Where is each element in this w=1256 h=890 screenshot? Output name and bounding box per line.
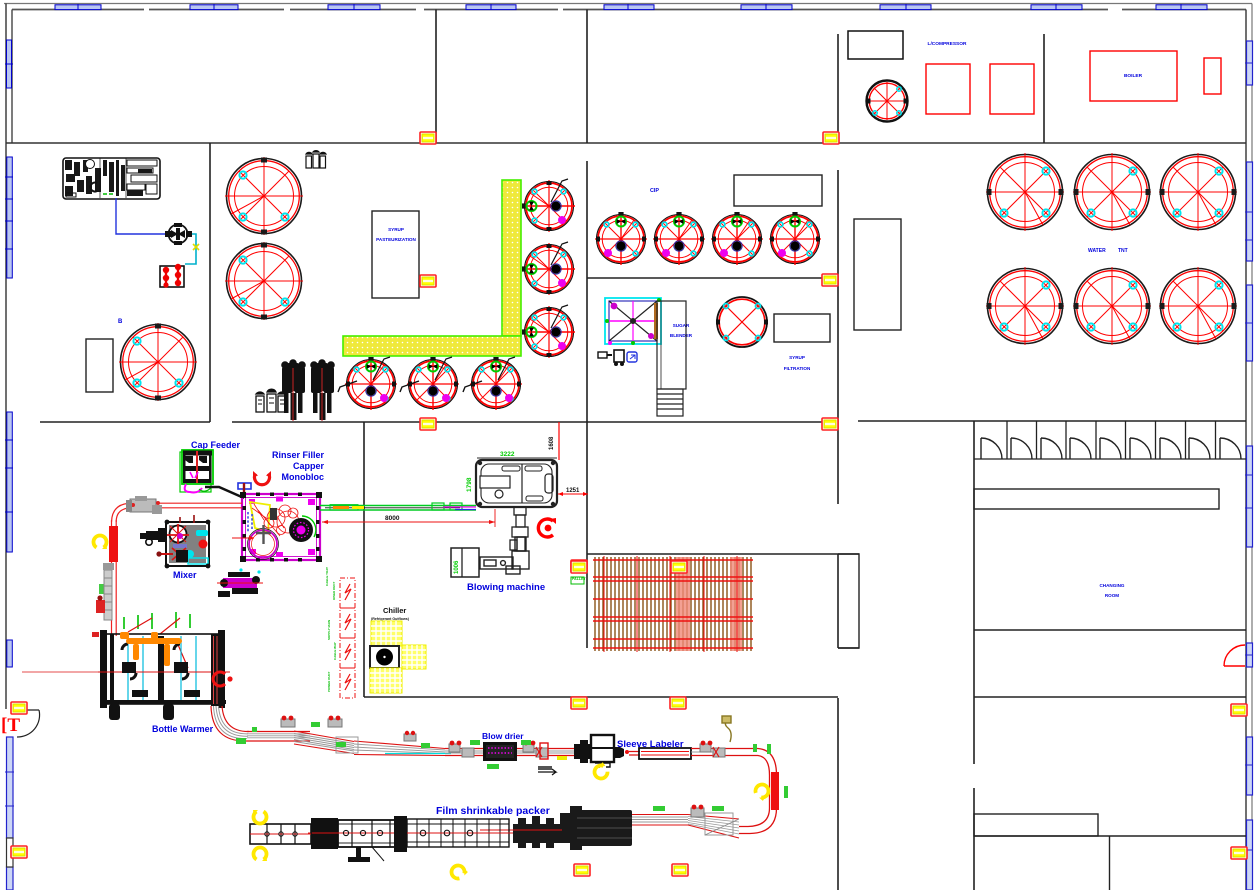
svg-text:B: B (118, 319, 123, 325)
svg-text:SUPPLY MAIN: SUPPLY MAIN (327, 620, 331, 640)
svg-text:BOILER: BOILER (1124, 73, 1143, 79)
svg-text:1006: 1006 (454, 560, 460, 574)
svg-text:ROOM: ROOM (1105, 593, 1119, 598)
svg-text:SYRUP: SYRUP (388, 227, 404, 232)
svg-text:(Refrigerant Outflows): (Refrigerant Outflows) (371, 617, 410, 621)
svg-text:Mixer: Mixer (173, 570, 197, 580)
svg-text:PASTEURIZATION: PASTEURIZATION (376, 237, 416, 242)
svg-text:RISER DUCT: RISER DUCT (332, 581, 336, 600)
svg-text:1798: 1798 (466, 477, 473, 492)
svg-text:Capper: Capper (293, 461, 325, 471)
svg-text:BLENDER: BLENDER (670, 333, 693, 338)
svg-text:Blowing machine: Blowing machine (467, 582, 545, 593)
svg-text:POWER DUCT: POWER DUCT (327, 671, 331, 692)
svg-text:WATER: WATER (1088, 248, 1106, 254)
svg-text:Chiller: Chiller (383, 606, 406, 615)
svg-text:[T: [T (1, 715, 20, 736)
svg-text:TNT: TNT (1118, 248, 1128, 254)
svg-text:CABLE TRAY: CABLE TRAY (325, 567, 329, 586)
svg-text:Cap Feeder: Cap Feeder (191, 440, 241, 450)
svg-text:CIP: CIP (650, 188, 659, 194)
svg-text:Rinser Filler: Rinser Filler (272, 450, 325, 460)
svg-text:SUGAR: SUGAR (673, 323, 690, 328)
svg-text:Monobloc: Monobloc (282, 472, 325, 482)
svg-text:FILTRATION: FILTRATION (784, 366, 811, 371)
svg-text:CABLE WAY: CABLE WAY (333, 642, 337, 660)
svg-text:3222: 3222 (500, 451, 515, 458)
svg-text:1251: 1251 (566, 488, 580, 494)
svg-text:Bottle Warmer: Bottle Warmer (152, 724, 214, 734)
svg-text:8000: 8000 (385, 515, 400, 522)
svg-text:Film shrinkable packer: Film shrinkable packer (436, 805, 550, 817)
svg-text:Blow drier: Blow drier (482, 731, 524, 741)
svg-text:PALLET: PALLET (572, 577, 587, 581)
svg-text:1608: 1608 (549, 436, 555, 450)
svg-text:SYRUP: SYRUP (789, 355, 805, 360)
svg-text:L/COMPRESSOR: L/COMPRESSOR (928, 41, 967, 47)
svg-text:CHANGING: CHANGING (1099, 583, 1124, 588)
